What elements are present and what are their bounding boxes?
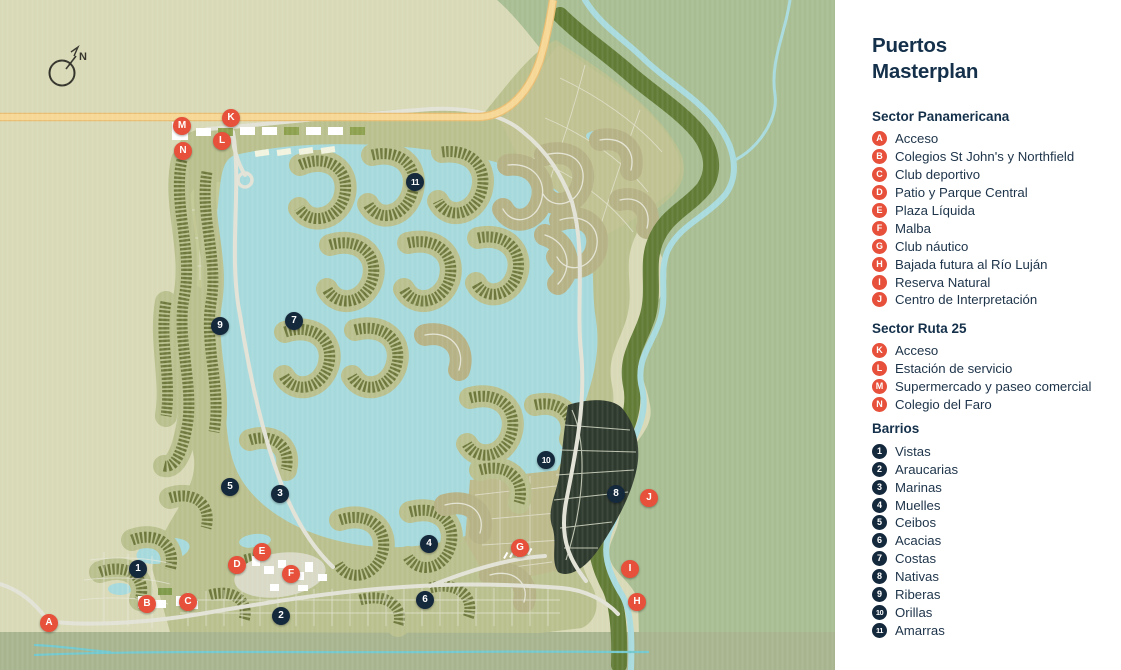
legend-item-7: 7Costas [872, 550, 1101, 568]
legend-item-5: 5Ceibos [872, 514, 1101, 532]
map-marker-7: 7 [285, 312, 303, 330]
legend-badge-5: 5 [872, 515, 887, 530]
legend-label: Acceso [895, 131, 938, 146]
legend-item-N: NColegio del Faro [872, 396, 1101, 414]
legend-label: Plaza Líquida [895, 203, 975, 218]
legend-badge-6: 6 [872, 533, 887, 548]
legend-badge-2: 2 [872, 462, 887, 477]
legend-label: Estación de servicio [895, 361, 1012, 376]
legend-panel: Puertos Masterplan Sector PanamericanaAA… [835, 0, 1121, 670]
map-marker-H: H [628, 593, 646, 611]
map-marker-C: C [179, 593, 197, 611]
legend-item-8: 8Nativas [872, 568, 1101, 586]
legend-badge-M: M [872, 379, 887, 394]
legend-badge-N: N [872, 397, 887, 412]
legend-label: Patio y Parque Central [895, 185, 1028, 200]
legend-badge-I: I [872, 275, 887, 290]
legend-item-L: LEstación de servicio [872, 360, 1101, 378]
legend-item-B: BColegios St John's y Northfield [872, 148, 1101, 166]
legend-label: Colegios St John's y Northfield [895, 149, 1074, 164]
legend-list: AAccesoBColegios St John's y NorthfieldC… [872, 130, 1101, 309]
legend-badge-E: E [872, 203, 887, 218]
map-marker-9: 9 [211, 317, 229, 335]
legend-item-K: KAcceso [872, 342, 1101, 360]
map-marker-K: K [222, 109, 240, 127]
legend-item-A: AAcceso [872, 130, 1101, 148]
legend-list: 1Vistas2Araucarias3Marinas4Muelles5Ceibo… [872, 442, 1101, 639]
map-marker-2: 2 [272, 607, 290, 625]
legend-label: Nativas [895, 569, 939, 584]
legend-section-heading: Barrios [872, 421, 1101, 436]
legend-badge-H: H [872, 257, 887, 272]
map-marker-N: N [174, 142, 192, 160]
map-marker-10: 10 [537, 451, 555, 469]
legend-item-4: 4Muelles [872, 496, 1101, 514]
legend-label: Club deportivo [895, 167, 980, 182]
legend-badge-L: L [872, 361, 887, 376]
legend-label: Acacias [895, 533, 941, 548]
legend-badge-8: 8 [872, 569, 887, 584]
legend-label: Amarras [895, 623, 945, 638]
legend-badge-B: B [872, 149, 887, 164]
legend-badge-4: 4 [872, 498, 887, 513]
legend-item-F: FMalba [872, 219, 1101, 237]
map-marker-1: 1 [129, 560, 147, 578]
legend-badge-3: 3 [872, 480, 887, 495]
legend-label: Costas [895, 551, 936, 566]
legend-item-9: 9Riberas [872, 586, 1101, 604]
legend-section-heading: Sector Ruta 25 [872, 321, 1101, 336]
legend-label: Araucarias [895, 462, 958, 477]
map-marker-B: B [138, 595, 156, 613]
legend-badge-J: J [872, 292, 887, 307]
puertos-masterplan-page: N ABCDEFGHIJKLMN1234567891011 Puertos Ma… [0, 0, 1121, 670]
map-marker-E: E [253, 543, 271, 561]
legend-item-C: CClub deportivo [872, 166, 1101, 184]
legend-label: Acceso [895, 343, 938, 358]
map-marker-A: A [40, 614, 58, 632]
map-marker-11: 11 [406, 173, 424, 191]
legend-item-H: HBajada futura al Río Luján [872, 255, 1101, 273]
legend-item-G: GClub náutico [872, 237, 1101, 255]
legend-badge-G: G [872, 239, 887, 254]
map-marker-L: L [213, 132, 231, 150]
legend-item-6: 6Acacias [872, 532, 1101, 550]
legend-label: Reserva Natural [895, 275, 990, 290]
legend-item-10: 10Orillas [872, 603, 1101, 621]
map-marker-3: 3 [271, 485, 289, 503]
legend-item-M: MSupermercado y paseo comercial [872, 378, 1101, 396]
legend-badge-C: C [872, 167, 887, 182]
map-marker-G: G [511, 539, 529, 557]
legend-badge-K: K [872, 343, 887, 358]
map-marker-M: M [173, 117, 191, 135]
legend-badge-F: F [872, 221, 887, 236]
legend-item-1: 1Vistas [872, 442, 1101, 460]
legend-badge-11: 11 [872, 623, 887, 638]
page-title: Puertos Masterplan [872, 33, 1101, 85]
map-marker-J: J [640, 489, 658, 507]
map-marker-D: D [228, 556, 246, 574]
legend-item-E: EPlaza Líquida [872, 202, 1101, 220]
legend-label: Bajada futura al Río Luján [895, 257, 1048, 272]
map-marker-5: 5 [221, 478, 239, 496]
legend-section-3: Barrios1Vistas2Araucarias3Marinas4Muelle… [872, 421, 1101, 639]
legend-label: Riberas [895, 587, 940, 602]
legend-label: Muelles [895, 498, 940, 513]
legend-list: KAccesoLEstación de servicioMSupermercad… [872, 342, 1101, 414]
legend-item-3: 3Marinas [872, 478, 1101, 496]
legend-badge-A: A [872, 131, 887, 146]
map-marker-I: I [621, 560, 639, 578]
legend-label: Centro de Interpretación [895, 292, 1037, 307]
legend-label: Colegio del Faro [895, 397, 992, 412]
legend-sections: Sector PanamericanaAAccesoBColegios St J… [872, 109, 1101, 639]
legend-label: Marinas [895, 480, 942, 495]
legend-label: Vistas [895, 444, 931, 459]
legend-label: Club náutico [895, 239, 968, 254]
legend-label: Ceibos [895, 515, 936, 530]
legend-section-heading: Sector Panamericana [872, 109, 1101, 124]
legend-badge-1: 1 [872, 444, 887, 459]
page-title-line1: Puertos [872, 34, 947, 57]
map-marker-6: 6 [416, 591, 434, 609]
masterplan-map: N ABCDEFGHIJKLMN1234567891011 [0, 0, 835, 670]
legend-item-J: JCentro de Interpretación [872, 291, 1101, 309]
legend-item-11: 11Amarras [872, 621, 1101, 639]
legend-badge-10: 10 [872, 605, 887, 620]
legend-section-1: Sector PanamericanaAAccesoBColegios St J… [872, 109, 1101, 309]
legend-item-D: DPatio y Parque Central [872, 184, 1101, 202]
page-title-line2: Masterplan [872, 60, 978, 83]
legend-badge-9: 9 [872, 587, 887, 602]
legend-label: Malba [895, 221, 931, 236]
map-marker-8: 8 [607, 485, 625, 503]
legend-section-2: Sector Ruta 25KAccesoLEstación de servic… [872, 321, 1101, 414]
legend-badge-D: D [872, 185, 887, 200]
legend-item-I: IReserva Natural [872, 273, 1101, 291]
legend-label: Supermercado y paseo comercial [895, 379, 1091, 394]
map-marker-4: 4 [420, 535, 438, 553]
legend-item-2: 2Araucarias [872, 460, 1101, 478]
legend-label: Orillas [895, 605, 932, 620]
legend-badge-7: 7 [872, 551, 887, 566]
map-marker-layer: ABCDEFGHIJKLMN1234567891011 [0, 0, 835, 670]
map-marker-F: F [282, 565, 300, 583]
